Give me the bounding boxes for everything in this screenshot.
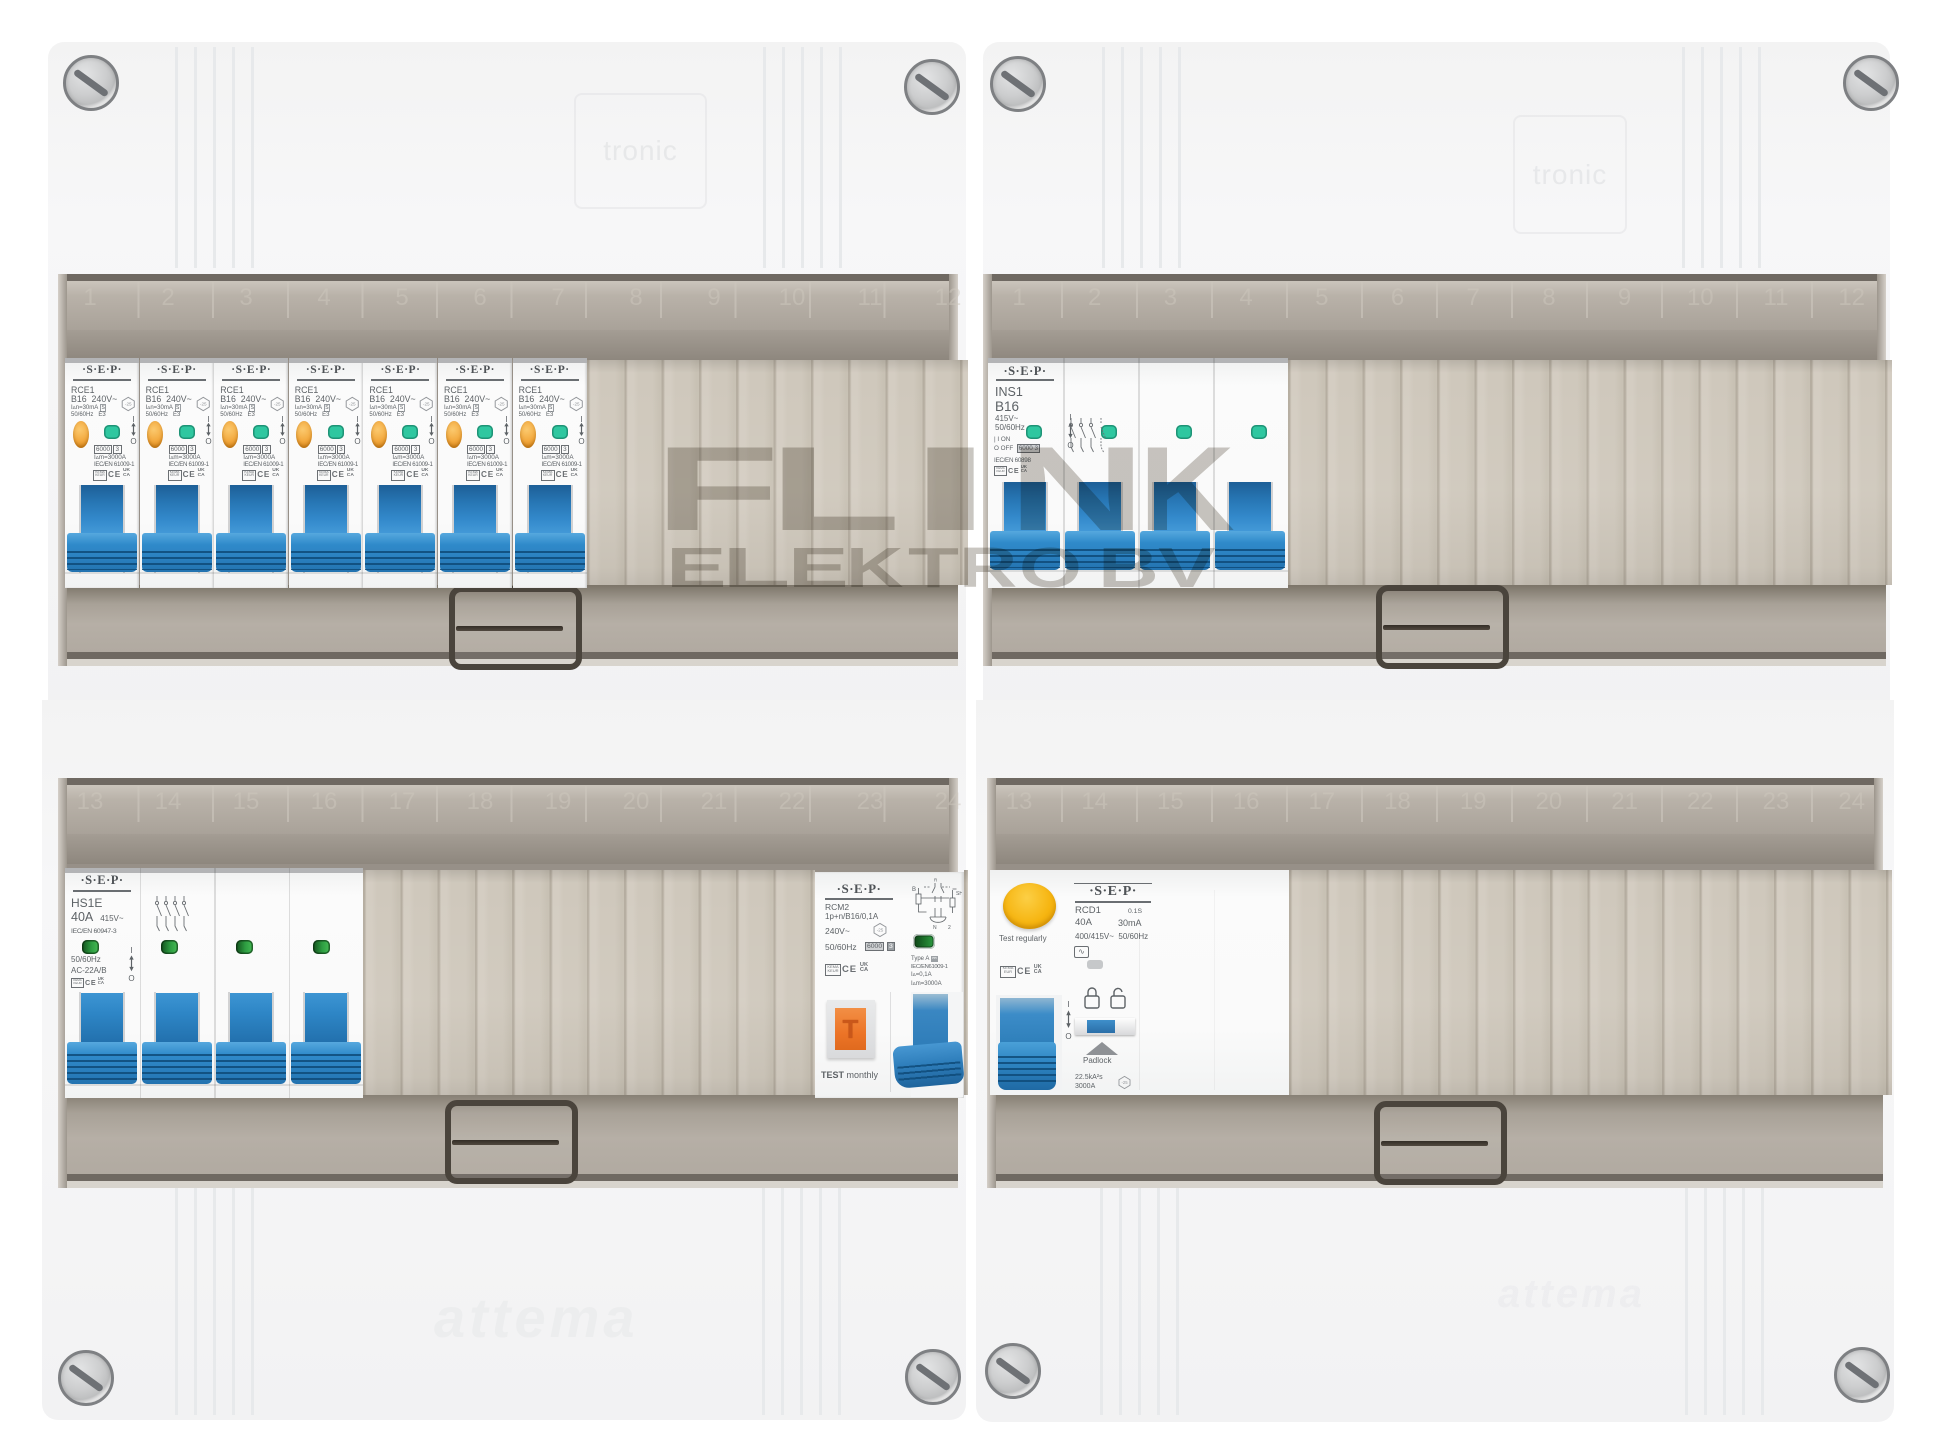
svg-text:O: O <box>354 437 360 445</box>
svg-text:-25: -25 <box>498 402 505 407</box>
svg-text:-25: -25 <box>274 402 281 407</box>
svg-text:O: O <box>128 974 134 982</box>
svg-text:I: I <box>207 415 209 424</box>
svg-text:-25: -25 <box>200 402 207 407</box>
svg-text:N: N <box>933 925 937 930</box>
svg-text:O: O <box>280 437 286 445</box>
svg-text:O: O <box>1065 1032 1071 1040</box>
svg-text:-25: -25 <box>349 402 356 407</box>
svg-text:-25: -25 <box>1121 1080 1128 1085</box>
svg-text:I: I <box>580 415 582 424</box>
svg-text:-25: -25 <box>423 402 430 407</box>
svg-text:I: I <box>356 415 358 424</box>
svg-text:I: I <box>130 946 132 955</box>
svg-text:B: B <box>912 887 916 893</box>
svg-text:2: 2 <box>948 925 951 930</box>
svg-text:O: O <box>429 437 435 445</box>
svg-text:I: I <box>505 415 507 424</box>
svg-text:-25: -25 <box>573 402 580 407</box>
svg-text:O: O <box>578 437 584 445</box>
svg-text:-25: -25 <box>125 402 132 407</box>
svg-text:O: O <box>205 437 211 445</box>
svg-text:O: O <box>130 437 136 445</box>
svg-text:-25: -25 <box>877 928 884 933</box>
svg-text:I: I <box>282 415 284 424</box>
svg-text:I: I <box>132 415 134 424</box>
svg-text:I: I <box>431 415 433 424</box>
svg-text:R: R <box>934 878 938 883</box>
svg-text:SH: SH <box>956 891 962 897</box>
svg-text:O: O <box>503 437 509 445</box>
svg-text:I: I <box>1067 1000 1069 1009</box>
